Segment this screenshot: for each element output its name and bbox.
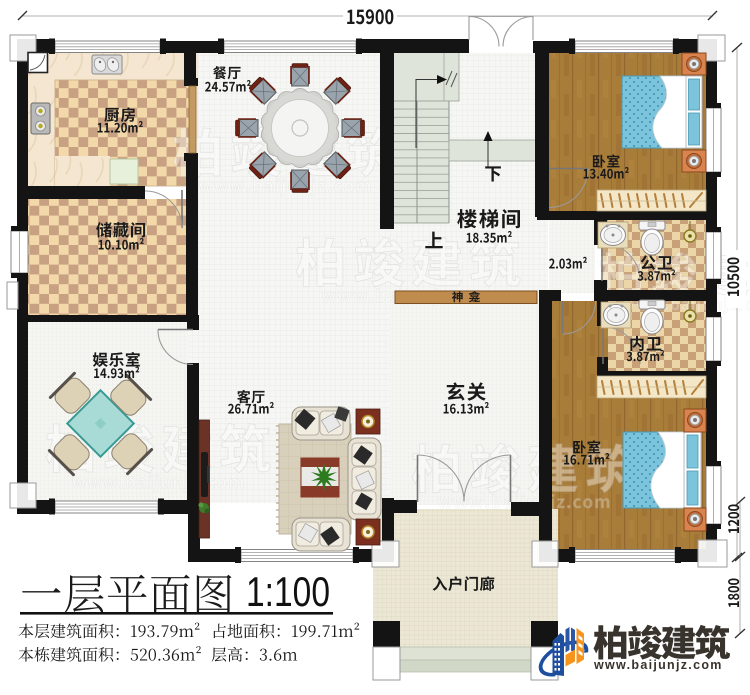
- svg-text:1:100: 1:100: [246, 568, 330, 615]
- svg-text:www.baijunjz.com: www.baijunjz.com: [593, 658, 723, 672]
